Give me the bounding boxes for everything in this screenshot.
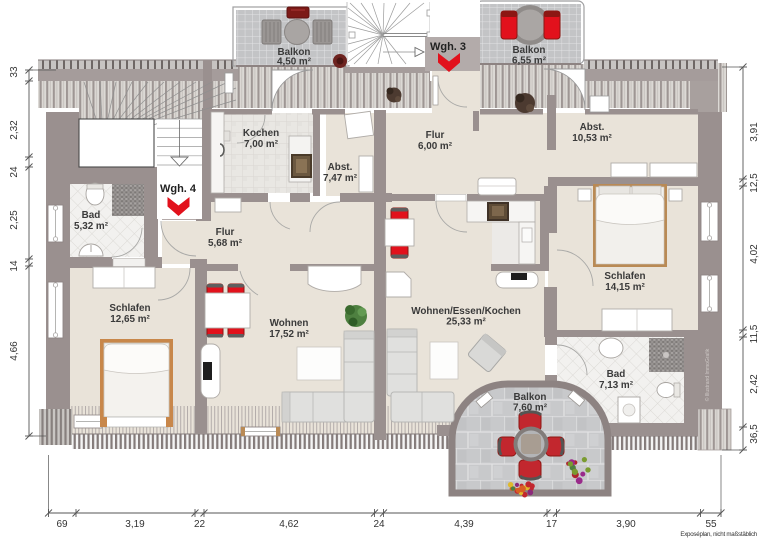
svg-text:Flur: Flur [216, 227, 235, 238]
svg-text:7,13 m²: 7,13 m² [599, 380, 634, 391]
svg-text:17,52 m²: 17,52 m² [269, 329, 309, 340]
svg-text:12,5: 12,5 [749, 173, 760, 193]
svg-text:33: 33 [9, 66, 20, 78]
svg-text:3,19: 3,19 [125, 519, 145, 530]
svg-text:11,5: 11,5 [749, 324, 760, 343]
svg-text:14,15 m²: 14,15 m² [605, 282, 645, 293]
svg-text:24: 24 [373, 519, 385, 530]
svg-text:Balkon: Balkon [513, 45, 546, 56]
svg-text:55: 55 [705, 519, 717, 530]
svg-text:4,62: 4,62 [279, 519, 299, 530]
svg-text:25,33 m²: 25,33 m² [446, 317, 486, 328]
svg-text:12,65 m²: 12,65 m² [110, 314, 150, 325]
svg-text:Wgh. 4: Wgh. 4 [160, 183, 197, 195]
svg-text:5,32 m²: 5,32 m² [74, 221, 109, 232]
svg-text:Schlafen: Schlafen [109, 303, 150, 314]
svg-text:Bad: Bad [82, 210, 101, 221]
svg-text:7,00 m²: 7,00 m² [244, 139, 279, 150]
svg-text:6,00 m²: 6,00 m² [418, 141, 453, 152]
svg-text:5,68 m²: 5,68 m² [208, 238, 243, 249]
svg-text:36,5: 36,5 [749, 424, 760, 444]
svg-text:3,91: 3,91 [749, 122, 760, 142]
svg-text:Wohnen/Essen/Kochen: Wohnen/Essen/Kochen [411, 306, 521, 317]
svg-text:2,25: 2,25 [9, 210, 20, 230]
svg-text:24: 24 [9, 166, 20, 178]
svg-text:22: 22 [194, 519, 206, 530]
svg-text:4,02: 4,02 [749, 244, 760, 264]
svg-text:2,42: 2,42 [749, 374, 760, 394]
svg-text:17: 17 [546, 519, 558, 530]
svg-text:Balkon: Balkon [514, 392, 547, 403]
svg-text:2,32: 2,32 [9, 120, 20, 140]
svg-text:Abst.: Abst. [328, 162, 353, 173]
svg-text:69: 69 [56, 519, 68, 530]
svg-text:4,39: 4,39 [454, 519, 474, 530]
svg-text:7,60 m²: 7,60 m² [513, 403, 548, 414]
svg-text:14: 14 [9, 260, 20, 272]
svg-text:Wgh. 3: Wgh. 3 [430, 41, 466, 53]
svg-text:Flur: Flur [426, 130, 445, 141]
svg-text:4,50 m²: 4,50 m² [277, 57, 312, 68]
svg-text:Exposéplan, nicht maßstäblich: Exposéplan, nicht maßstäblich [680, 531, 757, 538]
svg-text:© Illustrand ImmoGrafik: © Illustrand ImmoGrafik [704, 348, 711, 401]
svg-text:4,66: 4,66 [9, 341, 20, 361]
svg-text:6,55 m²: 6,55 m² [512, 56, 547, 67]
svg-text:Wohnen: Wohnen [270, 318, 309, 329]
svg-text:Bad: Bad [607, 369, 626, 380]
svg-text:3,90: 3,90 [616, 519, 636, 530]
svg-text:7,47 m²: 7,47 m² [323, 173, 358, 184]
svg-text:Abst.: Abst. [580, 122, 605, 133]
svg-text:Schlafen: Schlafen [604, 271, 645, 282]
svg-text:10,53 m²: 10,53 m² [572, 133, 612, 144]
svg-text:Kochen: Kochen [243, 128, 279, 139]
